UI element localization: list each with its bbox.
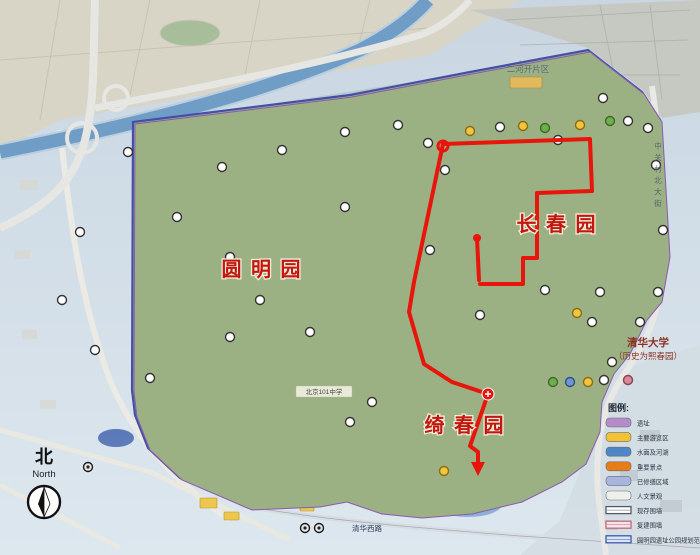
- tsinghua-label: 清华大学: [627, 336, 669, 349]
- legend-swatch: [606, 447, 631, 456]
- bus-stop-dot: [86, 465, 89, 468]
- yuanmingyuan-map-page: 圆 明 园长 春 园绮 春 园 二河开片区 清华大学 （历史为熙春园） 北京10…: [0, 0, 700, 555]
- map-marker: [278, 146, 287, 155]
- map-marker: [576, 121, 585, 130]
- compass-icon: [28, 486, 60, 518]
- map-marker: [441, 166, 450, 175]
- legend-label: 复建围墙: [637, 521, 663, 530]
- legend-title: 图例:: [608, 402, 629, 413]
- map-marker: [541, 124, 550, 133]
- map-marker: [476, 311, 485, 320]
- map-marker: [424, 139, 433, 148]
- garden-name-label: 圆 明 园: [221, 258, 302, 281]
- map-marker: [549, 378, 558, 387]
- east-street-label: 中关村北大街: [653, 141, 662, 211]
- palace-building: [224, 512, 239, 520]
- legend-swatch: [606, 476, 631, 485]
- bus-stop-dot: [317, 526, 320, 529]
- map-marker: [654, 288, 663, 297]
- map-marker: [440, 467, 449, 476]
- legend-swatch: [606, 418, 631, 427]
- erhekai-label: 二河开片区: [507, 64, 550, 74]
- map-marker: [541, 286, 550, 295]
- north-cn-label: 北: [35, 447, 53, 467]
- legend-label: 已修缮区域: [637, 477, 669, 486]
- erhekai-tag: [510, 77, 542, 88]
- map-marker: [584, 378, 593, 387]
- legend-label: 现存围墙: [637, 506, 663, 515]
- north-en-label: North: [32, 469, 55, 480]
- map-marker: [91, 346, 100, 355]
- map-marker: [566, 378, 575, 387]
- map-marker: [588, 318, 597, 327]
- map-marker: [256, 296, 265, 305]
- garden-name-label: 长 春 园: [516, 212, 597, 236]
- tour-route-line: [477, 238, 479, 280]
- tsinghua-sublabel: （历史为熙春园）: [614, 351, 682, 361]
- school-101-label: 北京101中学: [306, 387, 343, 396]
- legend-label: 圆明园遗址公园规划范围线: [637, 535, 700, 544]
- map-marker: [496, 123, 505, 132]
- map-marker: [636, 318, 645, 327]
- map-marker: [58, 296, 67, 305]
- map-marker: [600, 376, 609, 385]
- map-marker: [76, 228, 85, 237]
- map-canvas: 圆 明 园长 春 园绮 春 园 二河开片区 清华大学 （历史为熙春园） 北京10…: [0, 0, 700, 555]
- map-marker: [368, 398, 377, 407]
- legend-label: 遗址: [637, 419, 650, 428]
- palace-building: [200, 498, 217, 508]
- map-marker: [644, 124, 653, 133]
- map-marker: [519, 122, 528, 131]
- map-marker: [659, 226, 668, 235]
- park-boundary: [132, 50, 670, 518]
- legend-label: 重要景点: [637, 463, 662, 471]
- map-marker: [218, 163, 227, 172]
- legend-swatch: [606, 433, 631, 442]
- legend-swatch: [606, 491, 631, 500]
- map-marker: [124, 148, 133, 157]
- map-marker: [173, 213, 182, 222]
- map-marker: [624, 117, 633, 126]
- map-marker: [146, 374, 155, 383]
- legend-label: 人文景观: [637, 492, 663, 501]
- route-node-dot: [473, 234, 481, 242]
- bus-stop-dot: [303, 526, 306, 529]
- legend-label: 主要游览区: [637, 433, 668, 442]
- south-road-label: 清华西路: [352, 523, 382, 533]
- map-marker: [394, 121, 403, 130]
- map-marker: [573, 309, 582, 318]
- garden-name-label: 绮 春 园: [424, 413, 505, 437]
- map-marker: [426, 246, 435, 255]
- map-marker: [606, 117, 615, 126]
- map-marker: [624, 376, 633, 385]
- map-marker: [346, 418, 355, 427]
- map-marker: [226, 333, 235, 342]
- map-marker: [596, 288, 605, 297]
- map-marker: [306, 328, 315, 337]
- legend-label: 水面及河湖: [637, 448, 668, 457]
- map-marker: [341, 128, 350, 137]
- map-marker: [341, 203, 350, 212]
- map-marker: [599, 94, 608, 103]
- legend-swatch: [606, 462, 631, 471]
- map-marker: [466, 127, 475, 136]
